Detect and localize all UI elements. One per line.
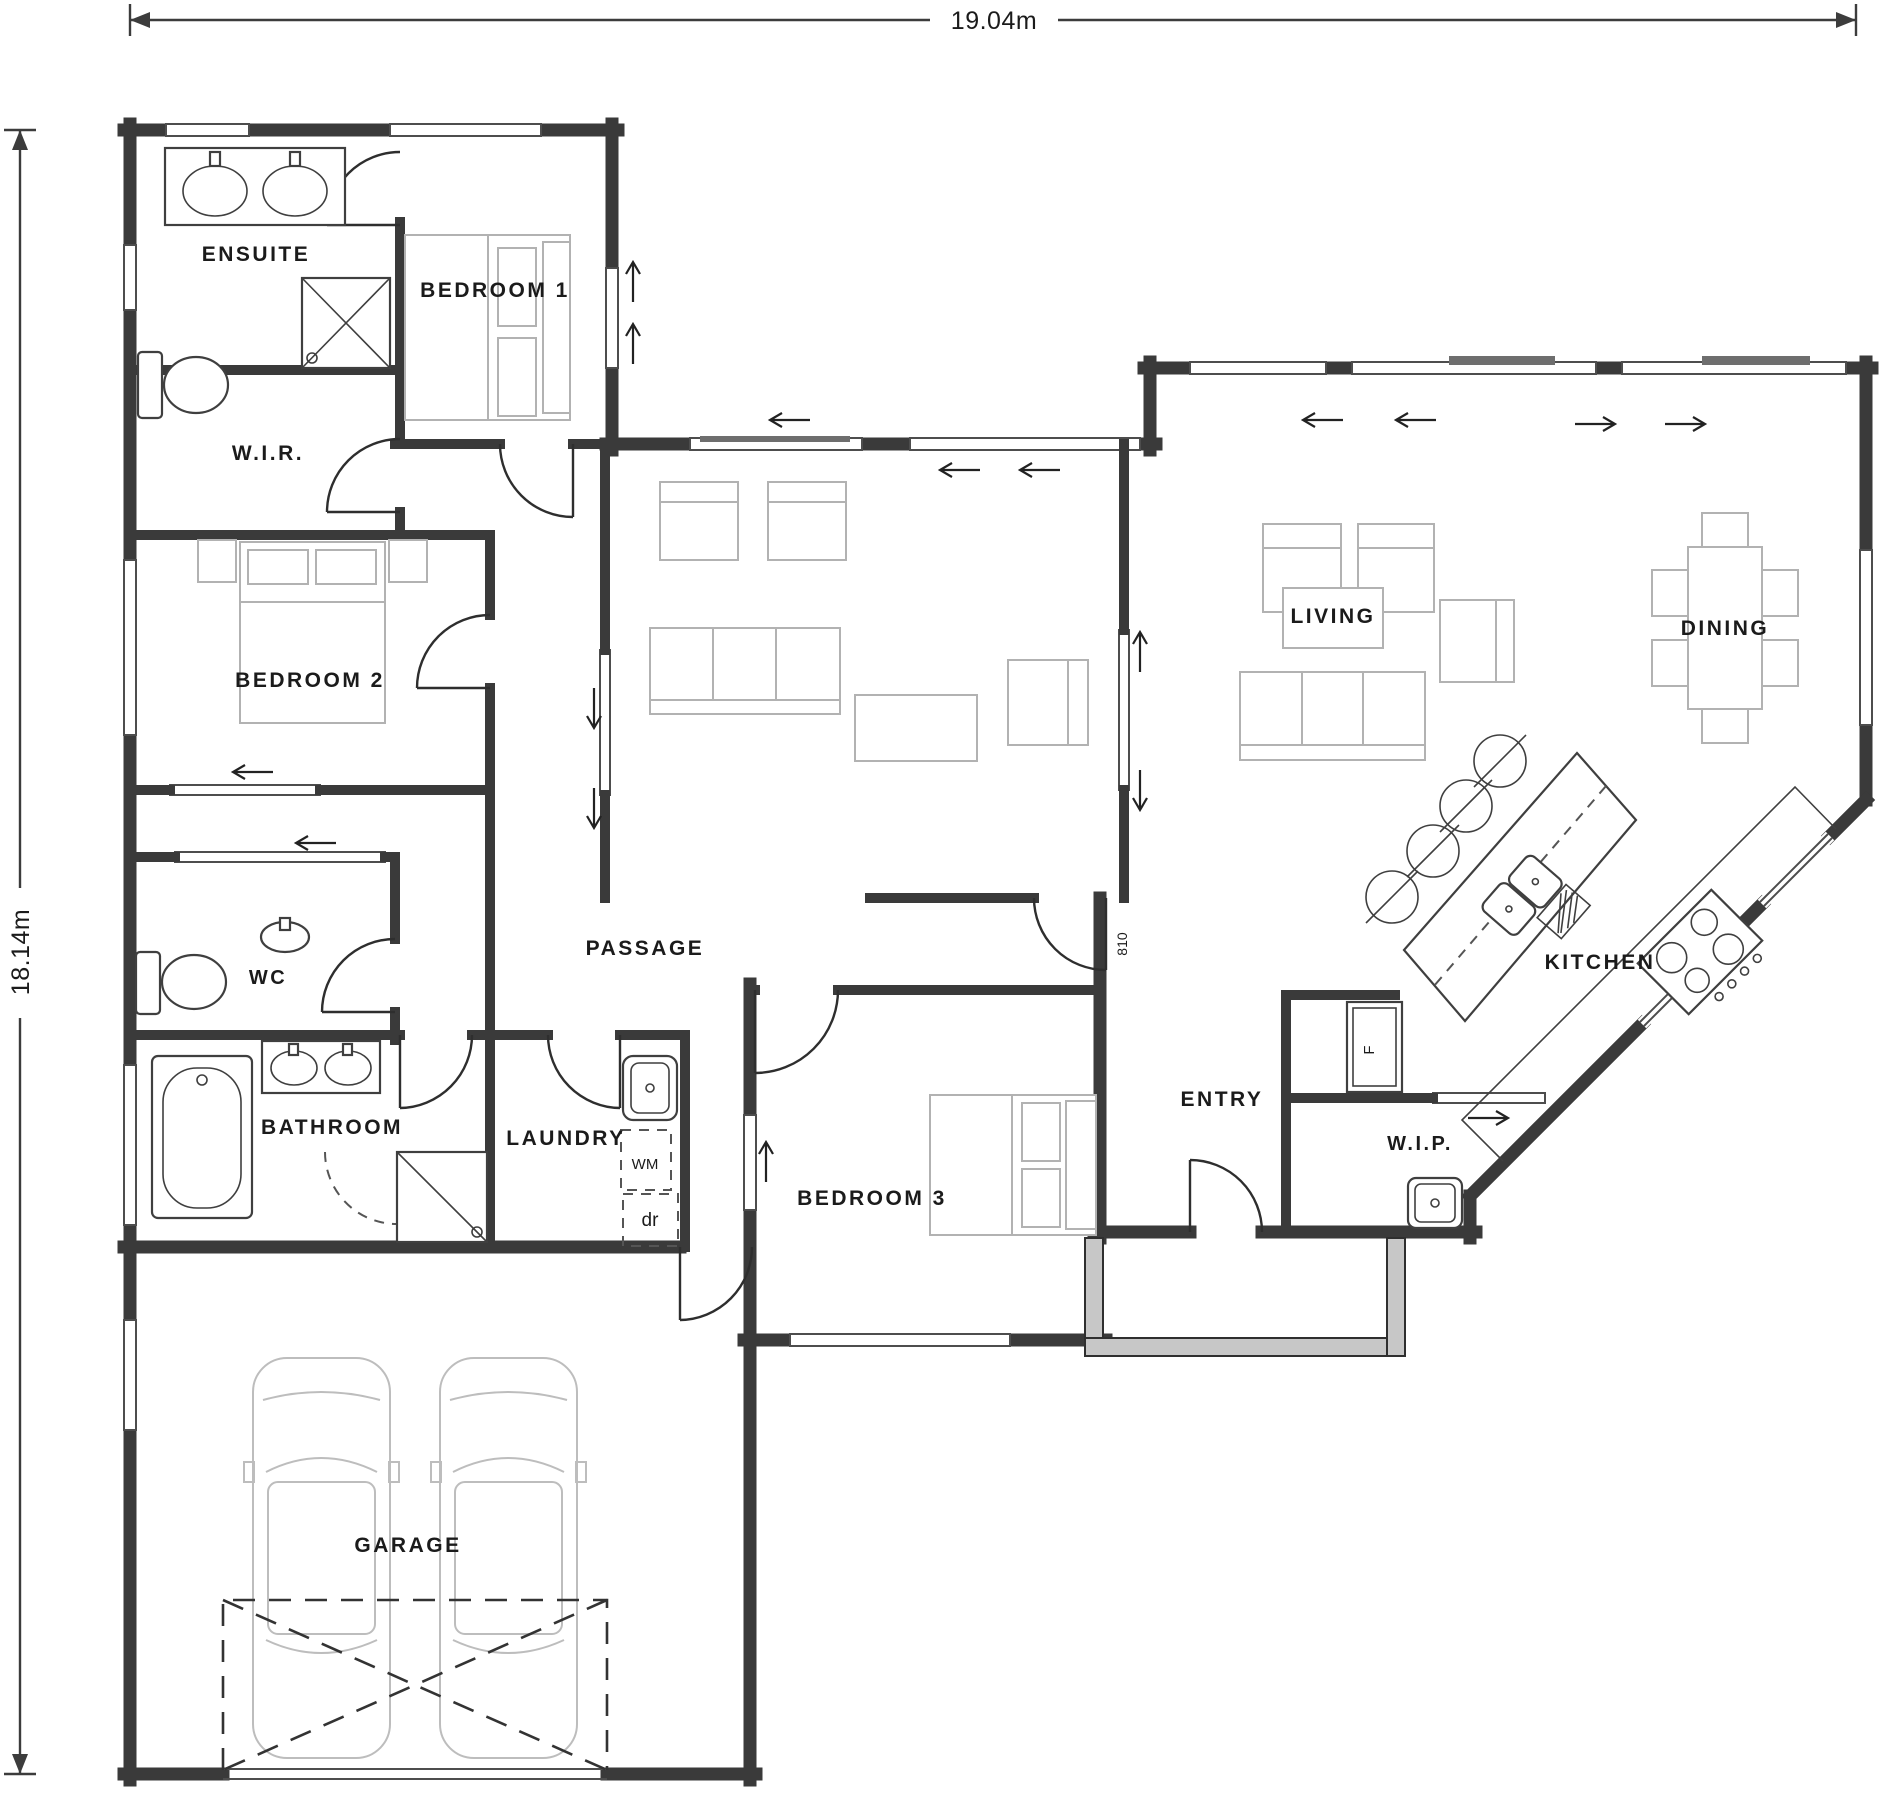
window-dining-east (1860, 550, 1872, 725)
sliding-door-panel-dining (1702, 356, 1810, 365)
lounge-sofa (650, 628, 840, 714)
door-bedroom2 (417, 615, 490, 688)
arrow-up-bedroom1-b (626, 324, 640, 364)
lounge-armchair-1 (660, 482, 738, 560)
dining-chair-bottom (1702, 709, 1748, 743)
slider-bedroom2-south (170, 785, 320, 795)
door-bedroom3 (755, 990, 838, 1073)
room-label-passage: PASSAGE (586, 937, 705, 960)
door-front-entry (1190, 1160, 1262, 1232)
arrow-down-passage-slider-1 (587, 688, 601, 728)
dimension-height-label: 18.14m (7, 909, 35, 995)
garage-car-1 (244, 1358, 399, 1758)
room-label-dining: DINING (1681, 617, 1770, 640)
bedroom2-side-table-right (389, 540, 427, 582)
floor-plan-drawing: 19.04m 18.14m (0, 0, 1900, 1819)
window-bedroom3-west (744, 1115, 756, 1210)
arrow-left-living-top-2 (1396, 413, 1436, 427)
arrow-left-lounge-slider (770, 413, 810, 427)
slider-living-lounge (1119, 630, 1129, 790)
arrow-up-living-divider (1133, 632, 1147, 672)
porch-wall-bottom (1085, 1338, 1405, 1356)
room-label-bedroom-2: BEDROOM 2 (235, 669, 385, 692)
room-label-living: LIVING (1290, 605, 1375, 628)
dining-chair-right-2 (1762, 640, 1798, 686)
door-laundry (548, 1035, 620, 1108)
bathroom-vanity (262, 1041, 380, 1093)
garage-content (223, 1358, 607, 1770)
dining-chair-left-1 (1652, 570, 1688, 616)
living-furniture (1240, 524, 1514, 760)
window-ensuite-west (124, 245, 136, 310)
window-bedroom1-top (390, 124, 541, 136)
slider-wip-north (1433, 1093, 1545, 1103)
door-wir (327, 439, 400, 512)
lounge-furniture (650, 482, 1088, 761)
living-armchair-3 (1440, 600, 1514, 682)
bathroom-shower (397, 1152, 487, 1242)
arrow-left-lounge-south-1 (940, 463, 980, 477)
room-label-bedroom-1: BEDROOM 1 (420, 279, 570, 302)
ensuite-toilet (138, 352, 228, 418)
living-sofa (1240, 672, 1425, 760)
room-label-entry: ENTRY (1181, 1088, 1264, 1111)
kitchen-island (1366, 735, 1636, 1021)
arrow-down-passage-slider-2 (587, 788, 601, 828)
ensuite-vanity (165, 148, 345, 225)
laundry-tub (623, 1056, 677, 1120)
island-stool-3 (1407, 825, 1459, 877)
island-stool-2 (1440, 780, 1492, 832)
door-wc (322, 939, 395, 1012)
arrow-right-dining-top-1 (1575, 417, 1615, 431)
arrow-left-living-top-1 (1303, 413, 1343, 427)
wip-fixtures (1347, 1002, 1462, 1228)
room-label-wir: W.I.R. (232, 442, 304, 465)
appliance-label-washing-machine: WM (632, 1156, 659, 1173)
lounge-armchair-3 (1008, 660, 1088, 745)
arrow-up-bedroom1-a (626, 262, 640, 302)
room-label-bedroom-3: BEDROOM 3 (797, 1187, 947, 1210)
bedroom1-bed (405, 235, 570, 420)
arrow-right-dining-top-2 (1665, 417, 1705, 431)
entry-porch (1085, 1238, 1405, 1356)
window-bedroom1-east (606, 268, 618, 368)
window-bathroom-west (124, 1065, 136, 1225)
window-garage-west (124, 1320, 136, 1430)
garage-door-tilt-marking (223, 1600, 607, 1770)
arrow-left-wc-slider (296, 836, 336, 850)
ensuite-fixtures (138, 148, 390, 418)
dimension-left: 18.14m (2, 130, 38, 1774)
bedroom2-side-table-left (198, 540, 236, 582)
door-shower-swing (325, 1152, 397, 1224)
floor-plan-page: 19.04m 18.14m (0, 0, 1900, 1819)
dining-chair-right-1 (1762, 570, 1798, 616)
room-label-ensuite: ENSUITE (202, 243, 311, 266)
dimension-top: 19.04m (130, 2, 1856, 38)
island-stool-1 (1474, 735, 1526, 787)
bedroom3-bed (930, 1095, 1096, 1235)
bathroom-bathtub (152, 1056, 252, 1218)
dining-chair-left-2 (1652, 640, 1688, 686)
arrow-down-living-divider (1133, 770, 1147, 810)
room-label-laundry: LAUNDRY (506, 1127, 625, 1150)
door-bedroom1 (500, 444, 573, 517)
room-label-kitchen: KITCHEN (1545, 951, 1656, 974)
door-garage-entry (680, 1247, 752, 1320)
room-label-bathroom: BATHROOM (261, 1116, 403, 1139)
window-lounge-south-band (910, 438, 1140, 450)
porch-post-right (1387, 1238, 1405, 1356)
slider-lounge-west (600, 650, 610, 795)
arrow-right-wip-slider (1468, 1111, 1508, 1125)
island-stool-4 (1366, 871, 1418, 923)
lounge-coffee-table (855, 695, 977, 761)
bathroom-fixtures (152, 1041, 487, 1242)
lounge-armchair-2 (768, 482, 846, 560)
room-label-wc: WC (249, 967, 287, 989)
sliding-door-panel-living (1449, 356, 1555, 365)
room-label-garage: GARAGE (354, 1534, 461, 1557)
arrow-left-lounge-south-2 (1020, 463, 1060, 477)
slider-wc-north (175, 852, 385, 862)
arrow-left-bedroom2-slider (233, 765, 273, 779)
window-bedroom2-west (124, 560, 136, 735)
bedroom2-bed (198, 540, 427, 723)
wc-fixtures (136, 918, 309, 1014)
door-width-label: 810 (1114, 932, 1130, 956)
dimension-width-label: 19.04m (951, 7, 1037, 35)
room-label-wip: W.I.P. (1387, 1133, 1453, 1155)
window-living-top-1 (1190, 362, 1326, 374)
door-bathroom (400, 1035, 472, 1108)
appliance-label-dryer: dr (642, 1210, 660, 1231)
appliance-label-fridge: F (1361, 1045, 1378, 1054)
ensuite-shower (302, 278, 390, 368)
wip-sink (1408, 1178, 1462, 1228)
arrow-up-bedroom3-window (759, 1142, 773, 1182)
wc-toilet (136, 952, 226, 1014)
window-ensuite-top (166, 124, 249, 136)
garage-car-2 (431, 1358, 586, 1758)
window-bedroom3-south (790, 1334, 1010, 1346)
dining-chair-top (1702, 513, 1748, 547)
